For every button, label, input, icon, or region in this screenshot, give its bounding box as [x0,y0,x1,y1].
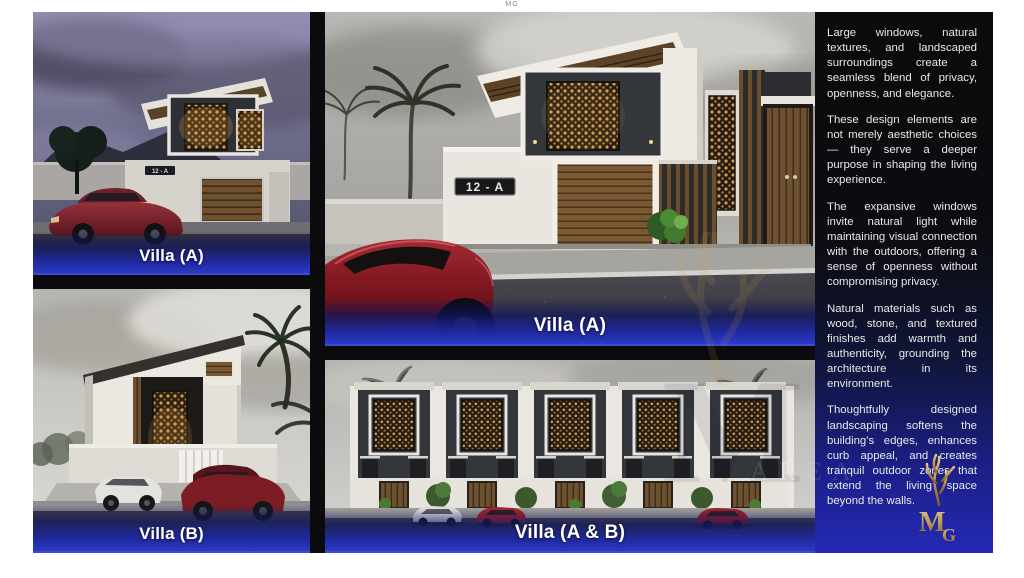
description-paragraph: These design elements are not merely aes… [827,113,977,189]
svg-text:12 - A: 12 - A [466,180,504,194]
villa-ab-panel: Villa (A & B) [325,360,815,553]
collage-board: 12 - A Villa (A) [33,12,993,553]
villa-a-day-render: 12 - A [325,12,815,346]
presentation-slide: MG [0,0,1024,578]
description-sidebar: Large windows, natural textures, and lan… [815,12,993,553]
description-paragraph: The expansive windows invite natural lig… [827,200,977,291]
description-paragraph: Large windows, natural textures, and lan… [827,26,977,102]
header-mark: MG [0,1,1024,8]
villa-a-label: Villa (A) [33,231,310,275]
villa-b-panel: Villa (B) [33,289,310,553]
description-text: Large windows, natural textures, and lan… [827,26,977,521]
villa-ab-label: Villa (A & B) [325,509,815,553]
villa-a-thumbnail-panel: 12 - A Villa (A) [33,12,310,275]
description-paragraph: Natural materials such as wood, stone, a… [827,302,977,393]
villa-a-main-label: Villa (A) [325,298,815,346]
antler-logo-icon: M G [909,451,969,547]
villa-a-main-panel: 12 - A [325,12,815,346]
svg-text:12 - A: 12 - A [152,169,169,175]
svg-text:G: G [942,525,956,545]
villa-b-label: Villa (B) [33,505,310,553]
